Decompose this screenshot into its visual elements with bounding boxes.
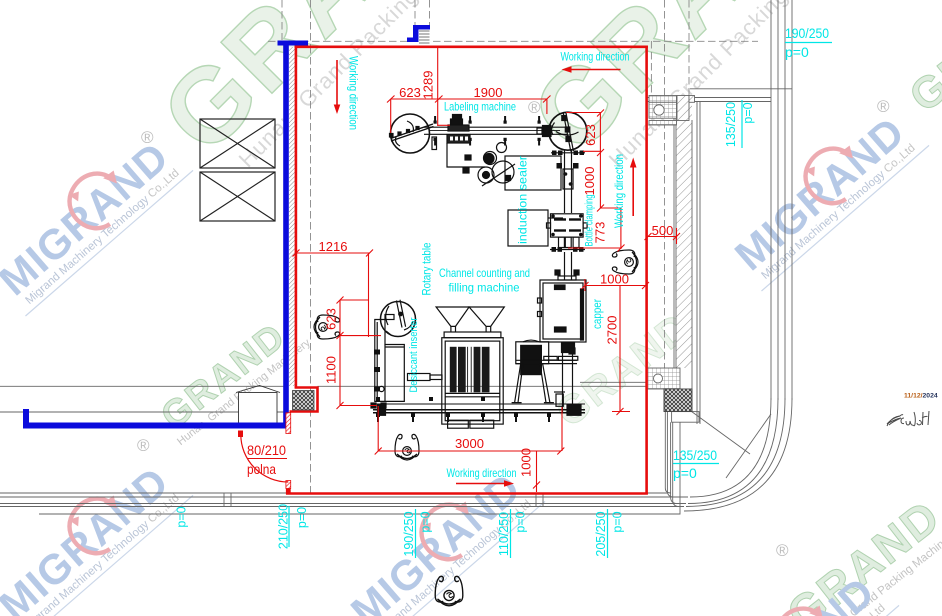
svg-text:11/12/2024: 11/12/2024 bbox=[904, 393, 938, 400]
svg-text:®: ® bbox=[137, 436, 150, 455]
svg-text:1100: 1100 bbox=[324, 356, 339, 384]
svg-text:1000: 1000 bbox=[600, 272, 629, 287]
svg-text:Working direction: Working direction bbox=[447, 466, 517, 480]
svg-text:80/210: 80/210 bbox=[247, 442, 286, 458]
svg-text:Labeling machine: Labeling machine bbox=[444, 100, 516, 114]
svg-text:110/250: 110/250 bbox=[497, 512, 511, 556]
svg-text:500: 500 bbox=[652, 223, 674, 238]
svg-text:Desiccant inserter: Desiccant inserter bbox=[408, 317, 420, 392]
svg-text:1900: 1900 bbox=[474, 85, 503, 100]
svg-text:®: ® bbox=[776, 541, 789, 560]
svg-text:p=0: p=0 bbox=[175, 506, 189, 527]
svg-text:p=0: p=0 bbox=[673, 465, 697, 481]
svg-text:filling machine: filling machine bbox=[449, 281, 520, 295]
svg-text:p=0: p=0 bbox=[741, 102, 755, 123]
svg-text:623: 623 bbox=[583, 124, 598, 146]
svg-text:polna: polna bbox=[247, 461, 276, 477]
svg-text:MIGRAND: MIGRAND bbox=[0, 133, 178, 305]
svg-text:GRAND: GRAND bbox=[901, 0, 942, 122]
svg-text:Rotary table: Rotary table bbox=[420, 242, 434, 295]
svg-text:p=0: p=0 bbox=[295, 507, 309, 528]
svg-text:p=0: p=0 bbox=[419, 511, 433, 532]
svg-text:2700: 2700 bbox=[605, 316, 620, 345]
svg-text:Bottle clamping: Bottle clamping bbox=[584, 195, 596, 247]
svg-text:p=0: p=0 bbox=[611, 511, 625, 532]
svg-text:Working direction: Working direction bbox=[561, 50, 630, 64]
svg-text:®: ® bbox=[877, 97, 890, 116]
svg-text:623: 623 bbox=[324, 308, 339, 330]
svg-text:135/250: 135/250 bbox=[673, 447, 717, 463]
svg-text:190/250: 190/250 bbox=[785, 25, 829, 41]
svg-text:3000: 3000 bbox=[455, 436, 484, 451]
svg-text:Working direction: Working direction bbox=[612, 154, 626, 228]
svg-text:®: ® bbox=[141, 128, 154, 147]
svg-text:1000: 1000 bbox=[582, 167, 597, 196]
svg-text:623: 623 bbox=[399, 85, 421, 100]
svg-text:induction sealer: induction sealer bbox=[516, 156, 530, 244]
svg-text:capper: capper bbox=[590, 299, 604, 329]
svg-text:135/250: 135/250 bbox=[724, 102, 738, 147]
svg-text:1216: 1216 bbox=[319, 239, 348, 254]
svg-text:190/250: 190/250 bbox=[402, 511, 416, 556]
svg-text:Working direction: Working direction bbox=[347, 56, 361, 130]
svg-text:®: ® bbox=[528, 98, 541, 117]
svg-text:1000: 1000 bbox=[519, 448, 534, 477]
svg-text:p=0: p=0 bbox=[785, 44, 809, 60]
svg-text:1289: 1289 bbox=[421, 71, 436, 100]
svg-text:Channel counting and: Channel counting and bbox=[439, 266, 530, 280]
svg-text:205/250: 205/250 bbox=[594, 511, 608, 556]
svg-text:p=0: p=0 bbox=[514, 511, 528, 532]
